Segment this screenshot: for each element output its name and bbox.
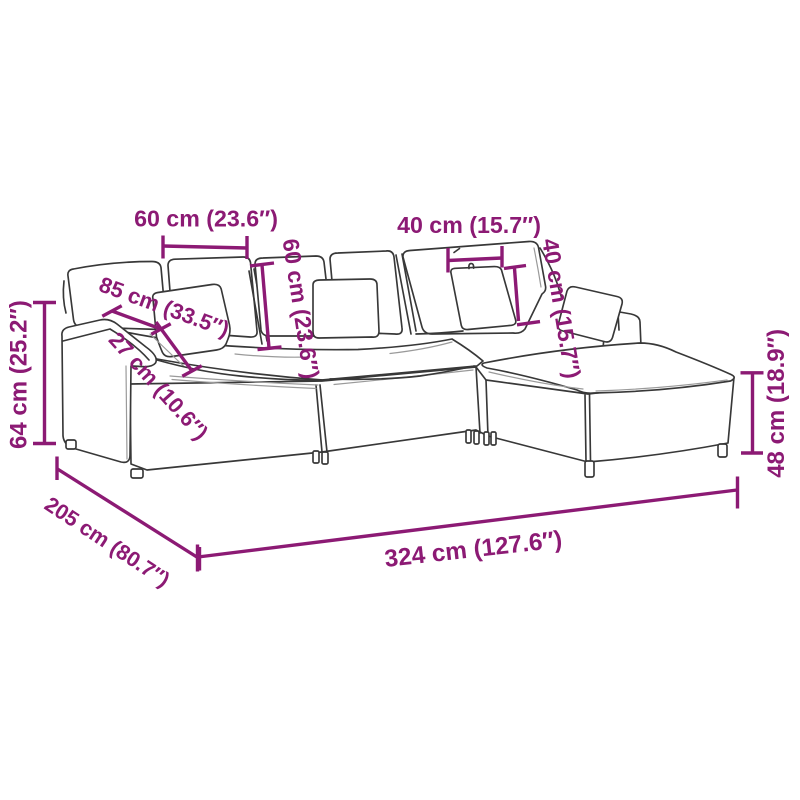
svg-text:48 cm (18.9″): 48 cm (18.9″) xyxy=(763,329,790,478)
svg-text:40 cm (15.7″): 40 cm (15.7″) xyxy=(397,212,541,238)
svg-text:64 cm (25.2″): 64 cm (25.2″) xyxy=(6,300,33,449)
svg-text:60 cm (23.6″): 60 cm (23.6″) xyxy=(134,206,278,232)
